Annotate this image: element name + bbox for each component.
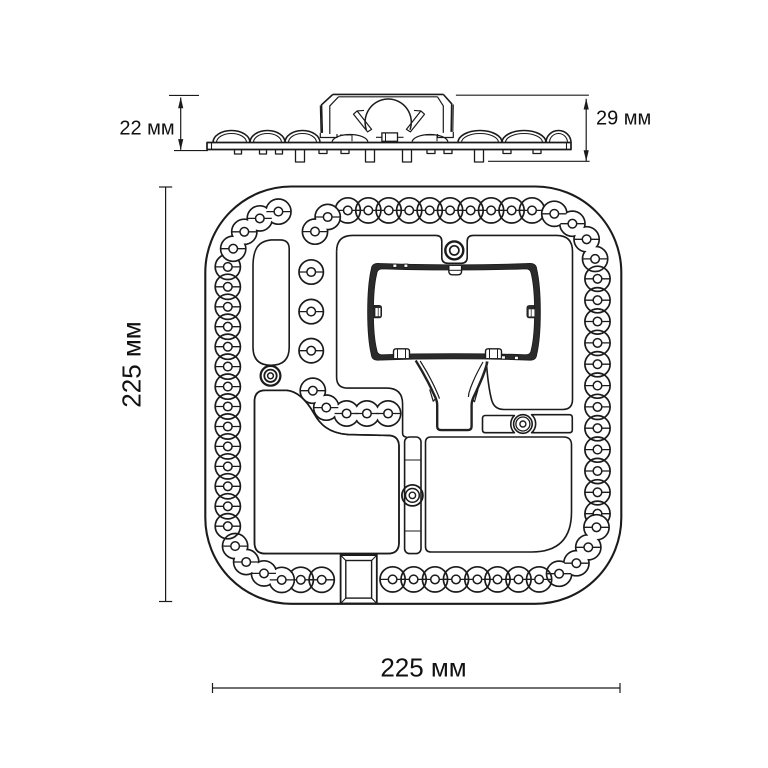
svg-text:225 мм: 225 мм (117, 321, 147, 407)
svg-text:29 мм: 29 мм (596, 108, 651, 130)
svg-text:225 мм: 225 мм (380, 653, 466, 683)
svg-text:22 мм: 22 мм (119, 118, 174, 140)
